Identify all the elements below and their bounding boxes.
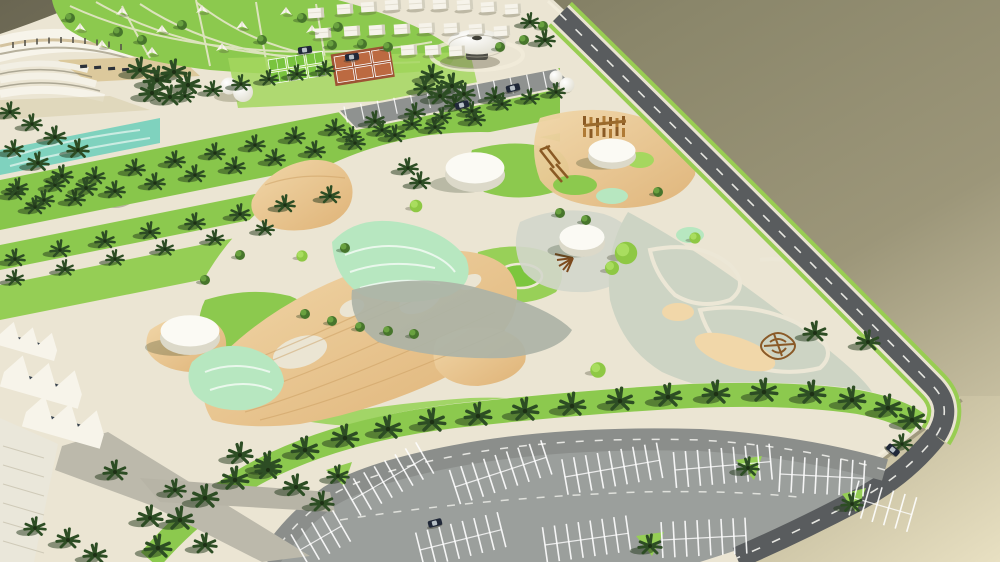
parked-mini-car: [80, 65, 87, 69]
render-canvas: Aerial perspective 3D architectural rend…: [0, 0, 1000, 562]
climber-post: [590, 129, 593, 138]
grandstand-slot: [36, 39, 38, 45]
grandstand-slot: [48, 38, 50, 44]
climber-post: [583, 128, 586, 137]
playground-pond: [596, 188, 628, 204]
parked-mini-car: [94, 66, 101, 70]
parked-mini-car: [108, 67, 115, 71]
grandstand-slot: [96, 40, 98, 46]
climber-post: [596, 127, 599, 136]
sand-patch-small: [662, 303, 694, 321]
climber-post: [583, 116, 586, 125]
grandstand-slot: [72, 37, 74, 43]
grandstand-slot: [84, 38, 86, 44]
climber-post: [603, 128, 606, 137]
grandstand-slot: [60, 37, 62, 43]
climber-post: [609, 129, 612, 138]
grandstand-slot: [108, 42, 110, 48]
grandstand-slot: [12, 42, 14, 48]
grandstand-slot: [120, 44, 122, 50]
park-masterplan-rendering: Aerial perspective 3D architectural rend…: [0, 0, 1000, 562]
climber-post: [616, 127, 619, 136]
climber-post: [622, 128, 625, 137]
grandstand-slot: [24, 40, 26, 46]
